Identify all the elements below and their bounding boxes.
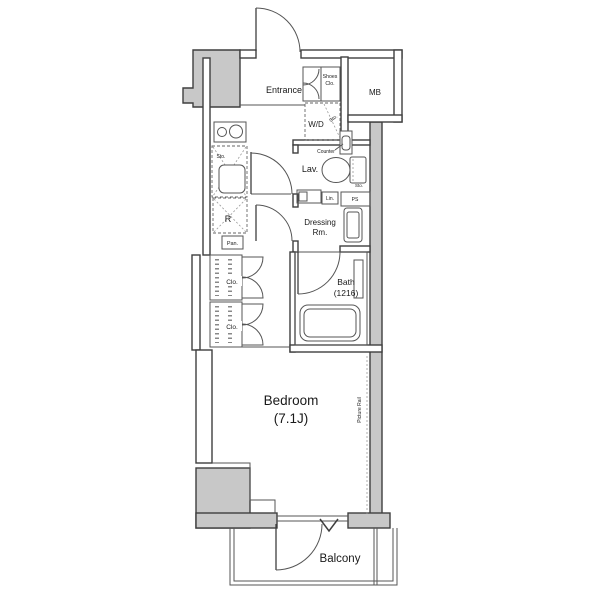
wall-left-bedroom [196, 350, 212, 463]
shoes-closet-label-1: Shoes [323, 74, 338, 80]
toilet-bowl-icon [322, 158, 350, 183]
closets [210, 255, 263, 347]
picture-rail-label: Picture Rail [357, 397, 363, 423]
wall-lav-west-3 [293, 241, 298, 252]
balcony-outline-inner [234, 528, 393, 581]
wall-bath-south [290, 345, 382, 352]
linen-label: Lin. [326, 196, 334, 202]
counter-label: Counter [317, 149, 335, 155]
wall-mb-right [394, 50, 402, 122]
floor-plan-page: Entrance Shoes Clo. MB W/D Sto. Sto. Cou… [0, 0, 600, 599]
wall-bottom-left [196, 513, 277, 528]
closet-upper-label: Clo. [226, 279, 238, 286]
kitchen [212, 122, 247, 249]
sink-icon [219, 165, 245, 193]
wall-top-left-of-door [240, 50, 256, 58]
wall-bath-west [290, 252, 295, 352]
wall-right [370, 122, 382, 518]
dressing-room-label-2: Rm. [313, 228, 328, 237]
toilet-storage-label: Sto. [355, 183, 363, 188]
bedroom-label-2: (7.1J) [274, 411, 309, 426]
wall-lav-north [293, 140, 370, 145]
balcony-area [230, 519, 397, 585]
balcony-outline-outer [230, 528, 397, 585]
washer-dryer-label: W/D [308, 120, 324, 129]
bath-label-1: Bath [337, 277, 355, 287]
entrance-label: Entrance [266, 85, 302, 95]
wall-left-upper [203, 58, 210, 255]
bathtub-icon [300, 305, 360, 341]
kitchen-storage-label: Sto. [217, 154, 226, 160]
closet-upper-door-arc-1 [242, 257, 263, 278]
balcony-door-swing [276, 524, 322, 570]
bath-room [295, 252, 367, 345]
pipe-space-label: PS [352, 197, 359, 203]
balcony-label: Balcony [320, 553, 361, 565]
wall-lav-west-1 [293, 145, 298, 153]
closet-upper-door-arc-2 [242, 277, 263, 298]
bedroom-label-1: Bedroom [264, 393, 319, 408]
column-top-left [183, 50, 240, 107]
toilet-tank-icon [350, 157, 366, 183]
wall-mb-bottom [348, 115, 402, 122]
lav-door-swing [251, 153, 292, 194]
fridge-label: R [225, 214, 232, 224]
wall-left-closet [192, 255, 200, 350]
closet-lower-door-arc-2 [242, 324, 263, 345]
dressing-room-label-1: Dressing [304, 218, 336, 227]
lavatory-label: Lav. [302, 164, 318, 174]
dressing-door-swing [256, 205, 292, 241]
bath-label-2: (1216) [334, 288, 359, 298]
floor-plan-svg: Entrance Shoes Clo. MB W/D Sto. Sto. Cou… [0, 0, 600, 599]
lav-cabinet-inner [299, 192, 307, 201]
closet-lower-door-arc-1 [242, 304, 263, 325]
entrance-door-swing [256, 8, 300, 52]
wall-top-right-of-door [301, 50, 402, 58]
wd-storage-label: Sto. [328, 114, 339, 124]
meter-box-label: MB [369, 88, 381, 97]
wall-mb-left [341, 57, 348, 143]
wall-bottom-right [348, 513, 390, 528]
shoes-closet-label-2: Clo. [325, 81, 334, 87]
wall-dressing-bath [340, 246, 370, 252]
pantry-label: Pan. [227, 241, 239, 247]
closet-lower-label: Clo. [226, 324, 238, 331]
